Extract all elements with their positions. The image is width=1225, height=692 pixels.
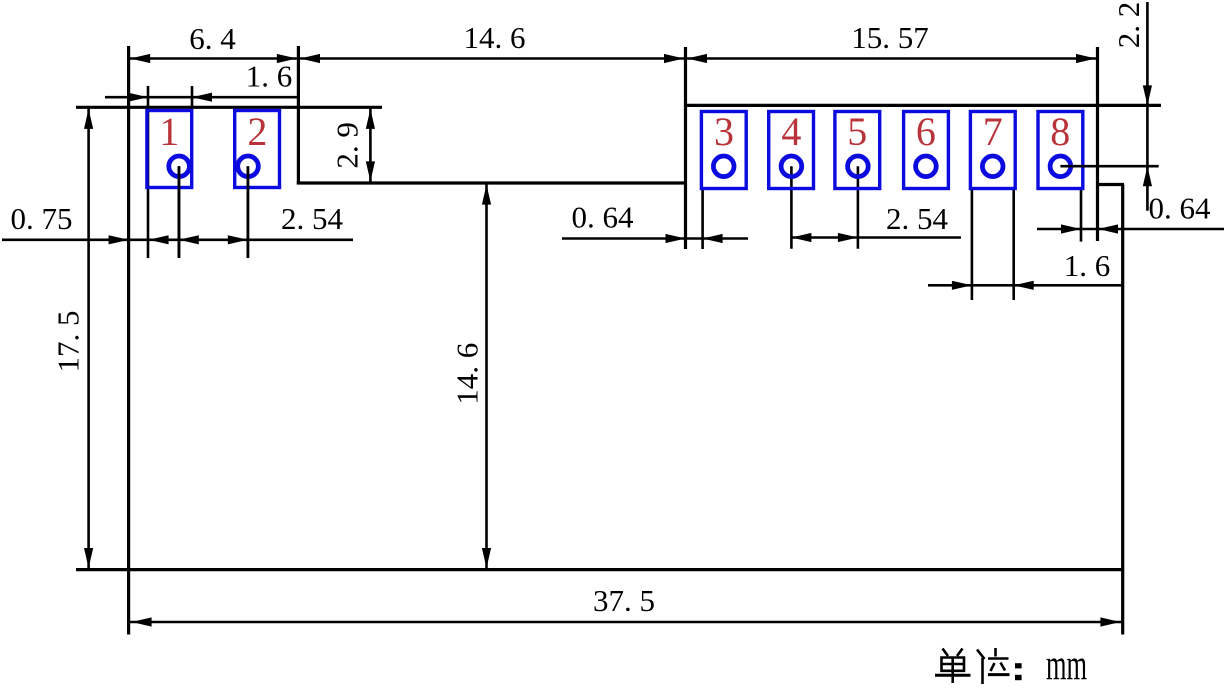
- svg-text:1. 6: 1. 6: [246, 59, 293, 94]
- svg-text:8: 8: [1050, 109, 1070, 154]
- svg-text:2. 2: 2. 2: [1111, 2, 1146, 49]
- svg-text:2. 9: 2. 9: [330, 122, 365, 169]
- svg-text:1. 6: 1. 6: [1064, 248, 1111, 283]
- svg-text:2: 2: [247, 109, 267, 154]
- svg-text:mm: mm: [1046, 641, 1087, 690]
- svg-text:15. 57: 15. 57: [851, 20, 929, 55]
- svg-text:0. 75: 0. 75: [11, 201, 73, 236]
- svg-text:4: 4: [781, 109, 801, 154]
- svg-text:2. 54: 2. 54: [281, 201, 344, 236]
- svg-text:6. 4: 6. 4: [189, 21, 236, 56]
- svg-text:14. 6: 14. 6: [450, 343, 485, 405]
- svg-text:2. 54: 2. 54: [886, 201, 949, 236]
- svg-text:37. 5: 37. 5: [593, 583, 655, 618]
- svg-text:14. 6: 14. 6: [464, 20, 526, 55]
- svg-text:1: 1: [159, 109, 179, 154]
- svg-text:17. 5: 17. 5: [51, 311, 86, 373]
- svg-text:7: 7: [983, 109, 1003, 154]
- svg-text:3: 3: [714, 109, 734, 154]
- svg-text:5: 5: [847, 109, 867, 154]
- svg-text:0. 64: 0. 64: [572, 200, 635, 235]
- svg-text:0. 64: 0. 64: [1149, 190, 1212, 225]
- svg-text:6: 6: [916, 109, 936, 154]
